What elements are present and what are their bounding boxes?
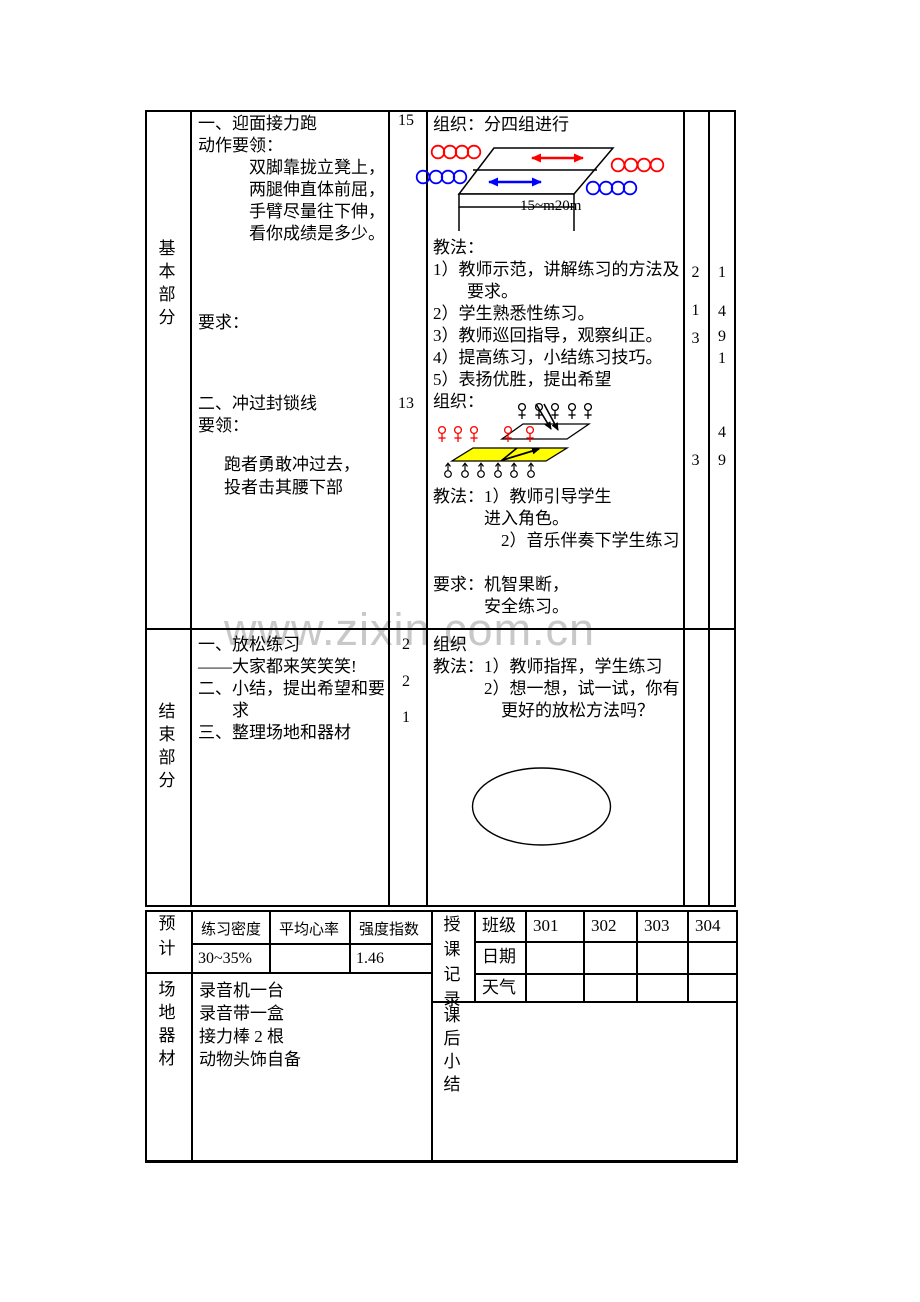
- ending-organization-text: 组织 教法：1）教师指挥，学生练习 2）想一想，试一试，你有 更好的放松方法吗？: [433, 634, 683, 722]
- count-cell: 4: [708, 424, 736, 442]
- count-cell: 2: [683, 264, 708, 282]
- teaching-methods2-text: 教法：1）教师引导学生 进入角色。 2）音乐伴奏下学生练习: [433, 486, 680, 552]
- time-value-15: 15: [390, 112, 422, 130]
- forecast-header-density: 练习密度: [195, 918, 267, 939]
- forecast-header-intensity: 强度指数: [350, 918, 428, 939]
- time-value: 2: [390, 636, 422, 654]
- grid-line: [191, 943, 431, 945]
- forecast-value-density: 30~35%: [198, 948, 252, 970]
- section-label-teaching-record: 授 课 记 录: [435, 912, 469, 1012]
- grid-line: [636, 910, 638, 1001]
- section-label-basic-part: 基 本 部 分: [150, 237, 184, 329]
- blockade-game-diagram: [430, 398, 605, 486]
- equipment-list-text: 录音机一台 录音带一盒 接力棒 2 根 动物头饰自备: [199, 979, 301, 1071]
- section-label-venue-equipment: 场 地 器 材: [150, 978, 184, 1070]
- record-row-label: 天气: [482, 977, 516, 999]
- grid-line: [431, 1001, 738, 1003]
- record-row-label: 日期: [482, 946, 516, 968]
- grid-line: [708, 110, 710, 907]
- teaching-methods1-text: 教法： 1）教师示范，讲解练习的方法及 要求。 2）学生熟悉性练习。 3）教师巡…: [433, 237, 681, 413]
- count-cell: 3: [683, 330, 708, 348]
- record-row-label: 班级: [482, 915, 516, 937]
- basic-requirement1-text: 要求：: [198, 312, 249, 334]
- grid-line: [388, 110, 390, 907]
- ending-items-text: 一、放松练习 ——大家都来笑笑笑! 二、小结，提出希望和要 求 三、整理场地和器…: [198, 634, 388, 744]
- forecast-header-heart-rate: 平均心率: [270, 918, 348, 939]
- grid-line: [474, 941, 738, 943]
- black-figures-row: [518, 404, 591, 419]
- distance-label: 15~m20m: [520, 195, 581, 217]
- grid-line: [431, 910, 433, 1163]
- time-value: 2: [390, 673, 422, 691]
- grid-line: [583, 910, 585, 1001]
- grid-line: [525, 910, 527, 1001]
- count-cell: 4: [708, 303, 736, 321]
- record-class-cell: 301: [533, 915, 559, 937]
- count-cell: 1: [708, 264, 736, 282]
- time-value-13: 13: [390, 395, 422, 413]
- grid-line: [191, 910, 193, 1163]
- basic-activity2-detail-text: 跑者勇敢冲过去， 投者击其腰下部: [224, 453, 360, 499]
- grid-line: [474, 973, 738, 975]
- record-class-cell: 303: [644, 915, 670, 937]
- relay-race-diagram: [415, 140, 685, 235]
- formation-ellipse: [468, 764, 616, 850]
- grid-line: [190, 110, 192, 907]
- grid-line: [687, 910, 689, 1001]
- basic-activity1-text: 一、迎面接力跑 动作要领： 双脚靠拢立凳上， 两腿伸直体前屈， 手臂尽量往下伸，…: [198, 113, 386, 245]
- section-label-forecast: 预 计: [150, 911, 184, 961]
- organization1-text: 组织：分四组进行: [433, 114, 569, 136]
- section-label-ending-part: 结 束 部 分: [150, 700, 184, 792]
- record-class-cell: 304: [695, 915, 721, 937]
- runner-figures-row: [445, 463, 535, 477]
- count-cell: 9: [708, 328, 736, 346]
- section-label-after-class-summary: 课 后 小 结: [435, 1004, 469, 1096]
- count-cell: 1: [683, 302, 708, 320]
- grid-line: [474, 910, 476, 1001]
- record-class-cell: 302: [591, 915, 617, 937]
- time-value: 1: [390, 709, 422, 727]
- forecast-value-intensity: 1.46: [356, 948, 384, 970]
- basic-activity2-text: 二、冲过封锁线 要领：: [198, 393, 317, 437]
- grid-line: [145, 972, 431, 974]
- count-cell: 3: [683, 452, 708, 470]
- grid-line: [145, 628, 736, 630]
- count-cell: 9: [708, 452, 736, 470]
- count-cell: 1: [708, 350, 736, 368]
- lesson-plan-page: www.zixin.com.cn 基 本 部 分 结 束 部 分 预 计 场 地…: [0, 0, 920, 1302]
- basic-requirement2-text: 要求：机智果断， 安全练习。: [433, 574, 569, 618]
